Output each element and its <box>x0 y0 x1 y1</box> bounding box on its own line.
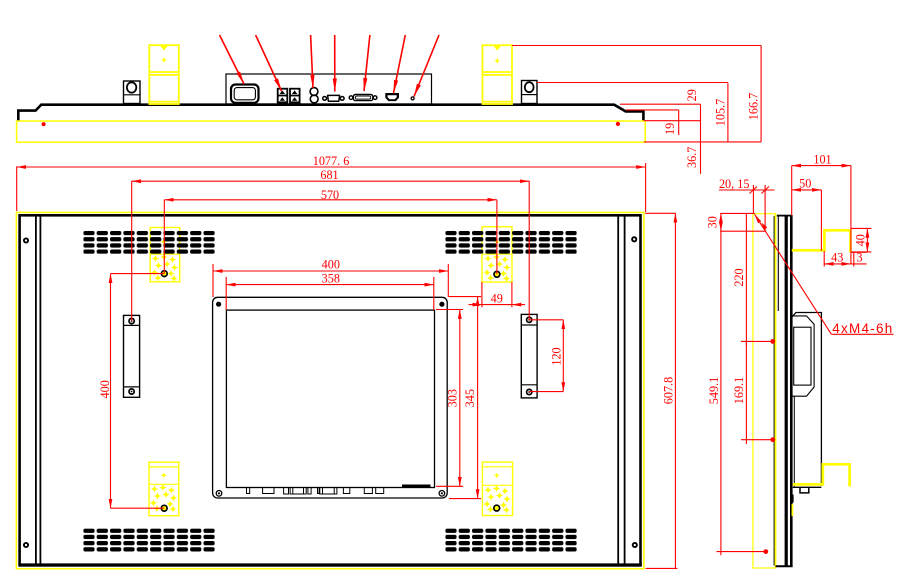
svg-text:358: 358 <box>322 271 340 285</box>
svg-text:30: 30 <box>706 216 720 228</box>
svg-text:40: 40 <box>853 234 867 246</box>
svg-text:50: 50 <box>799 177 811 191</box>
svg-text:120: 120 <box>549 347 563 365</box>
svg-text:20, 15: 20, 15 <box>719 177 749 191</box>
svg-text:169.1: 169.1 <box>732 377 746 404</box>
svg-text:3: 3 <box>857 251 863 265</box>
svg-text:29: 29 <box>685 89 699 101</box>
svg-text:607.8: 607.8 <box>661 377 675 404</box>
svg-text:400: 400 <box>98 380 112 398</box>
svg-text:549.1: 549.1 <box>707 377 721 404</box>
svg-text:570: 570 <box>321 188 339 202</box>
svg-text:220: 220 <box>732 268 746 286</box>
svg-text:400: 400 <box>322 258 340 272</box>
svg-text:166.7: 166.7 <box>747 93 761 120</box>
svg-text:49: 49 <box>491 292 503 306</box>
svg-text:345: 345 <box>463 389 477 407</box>
svg-text:43: 43 <box>831 251 843 265</box>
svg-text:19: 19 <box>663 123 677 135</box>
svg-text:36.7: 36.7 <box>685 147 699 168</box>
svg-text:101: 101 <box>813 152 831 166</box>
svg-text:1077. 6: 1077. 6 <box>313 154 350 168</box>
svg-text:105.7: 105.7 <box>714 99 728 126</box>
svg-text:681: 681 <box>320 168 338 182</box>
svg-text:4xM4-6h: 4xM4-6h <box>832 321 893 336</box>
svg-text:303: 303 <box>445 389 459 407</box>
